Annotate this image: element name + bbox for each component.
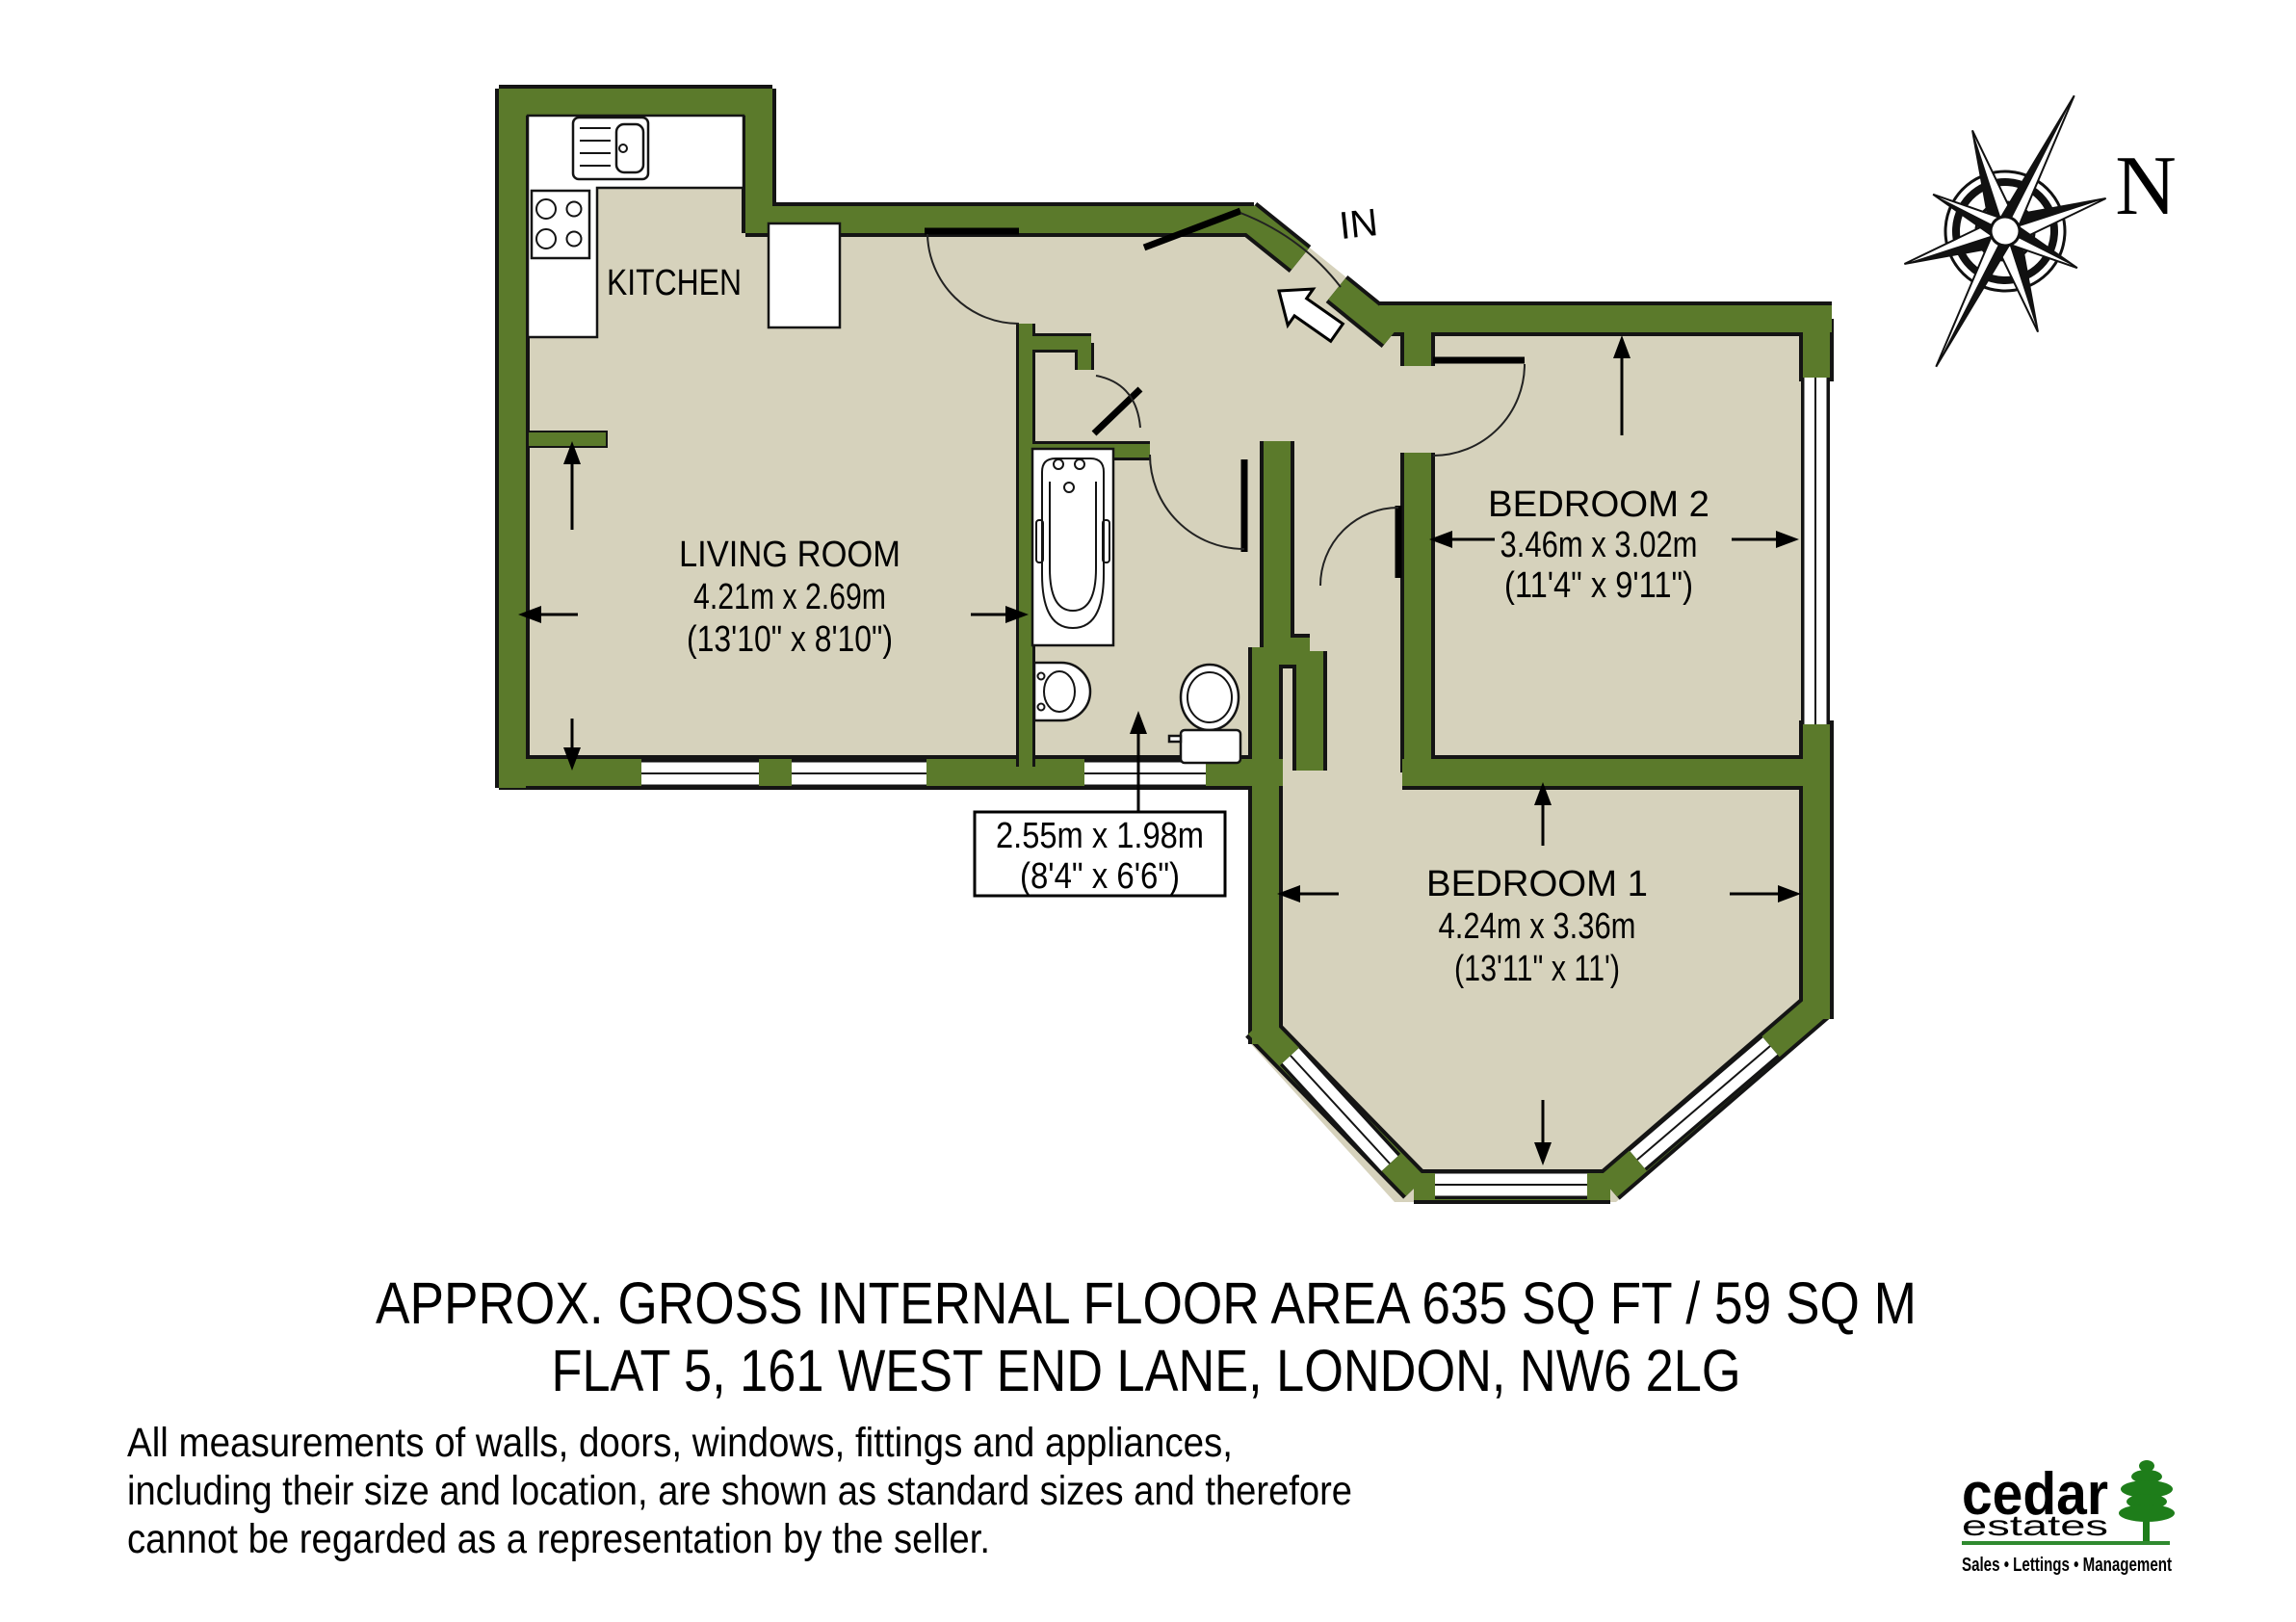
logo-underline <box>1962 1541 2170 1545</box>
disclaimer-line-1: All measurements of walls, doors, window… <box>127 1420 1233 1466</box>
kitchen-cupboard <box>769 223 840 327</box>
logo-sub: estates <box>1962 1510 2108 1542</box>
living-room-size-metric: 4.21m x 2.69m <box>693 577 886 617</box>
bedroom-2-size-metric: 3.46m x 3.02m <box>1500 525 1698 565</box>
compass-north-label: N <box>2115 140 2177 233</box>
logo-tagline: Sales • Lettings • Management <box>1962 1555 2172 1576</box>
disclaimer-line-2: including their size and location, are s… <box>127 1468 1352 1514</box>
bathroom-dimension-callout: 2.55m x 1.98m (8'4" x 6'6") <box>975 812 1225 897</box>
address-text: FLAT 5, 161 WEST END LANE, LONDON, NW6 2… <box>552 1338 1741 1403</box>
kitchen-hob <box>532 191 589 258</box>
wash-basin <box>1034 663 1090 720</box>
floor-area-text: APPROX. GROSS INTERNAL FLOOR AREA 635 SQ… <box>376 1270 1917 1336</box>
bedroom-2-size-imperial: (11'4" x 9'11") <box>1504 565 1693 606</box>
floor-plan-svg: IN KITCHEN LIVING ROOM 4.21m x 2.69m (13… <box>0 0 2296 1622</box>
compass-rose-icon: N <box>1860 86 2176 376</box>
kitchen-sink <box>573 118 648 179</box>
bedroom-1-size-imperial: (13'11" x 11') <box>1454 949 1620 989</box>
living-room-wall-stub <box>528 432 607 447</box>
logo-tree-icon <box>2119 1460 2175 1541</box>
floorplan-page: IN KITCHEN LIVING ROOM 4.21m x 2.69m (13… <box>0 0 2296 1622</box>
living-room-size-imperial: (13'10" x 8'10") <box>687 619 893 660</box>
kitchen-label: KITCHEN <box>607 263 742 303</box>
bathroom-size-imperial: (8'4" x 6'6") <box>1020 856 1180 897</box>
floor-plan: IN KITCHEN LIVING ROOM 4.21m x 2.69m (13… <box>499 89 1832 1202</box>
living-room-label: LIVING ROOM <box>679 535 900 575</box>
footer: APPROX. GROSS INTERNAL FLOOR AREA 635 SQ… <box>127 1270 1917 1562</box>
bathroom-size-metric: 2.55m x 1.98m <box>996 816 1204 856</box>
bathtub <box>1032 449 1113 645</box>
disclaimer-line-3: cannot be regarded as a representation b… <box>127 1516 990 1562</box>
bedroom-1-label: BEDROOM 1 <box>1426 864 1648 904</box>
agency-logo: cedar estates Sales • Lettings • Managem… <box>1962 1460 2175 1576</box>
bedroom-2-label: BEDROOM 2 <box>1488 484 1709 525</box>
entrance-label: IN <box>1337 201 1379 248</box>
bedroom-1-size-metric: 4.24m x 3.36m <box>1439 906 1636 947</box>
